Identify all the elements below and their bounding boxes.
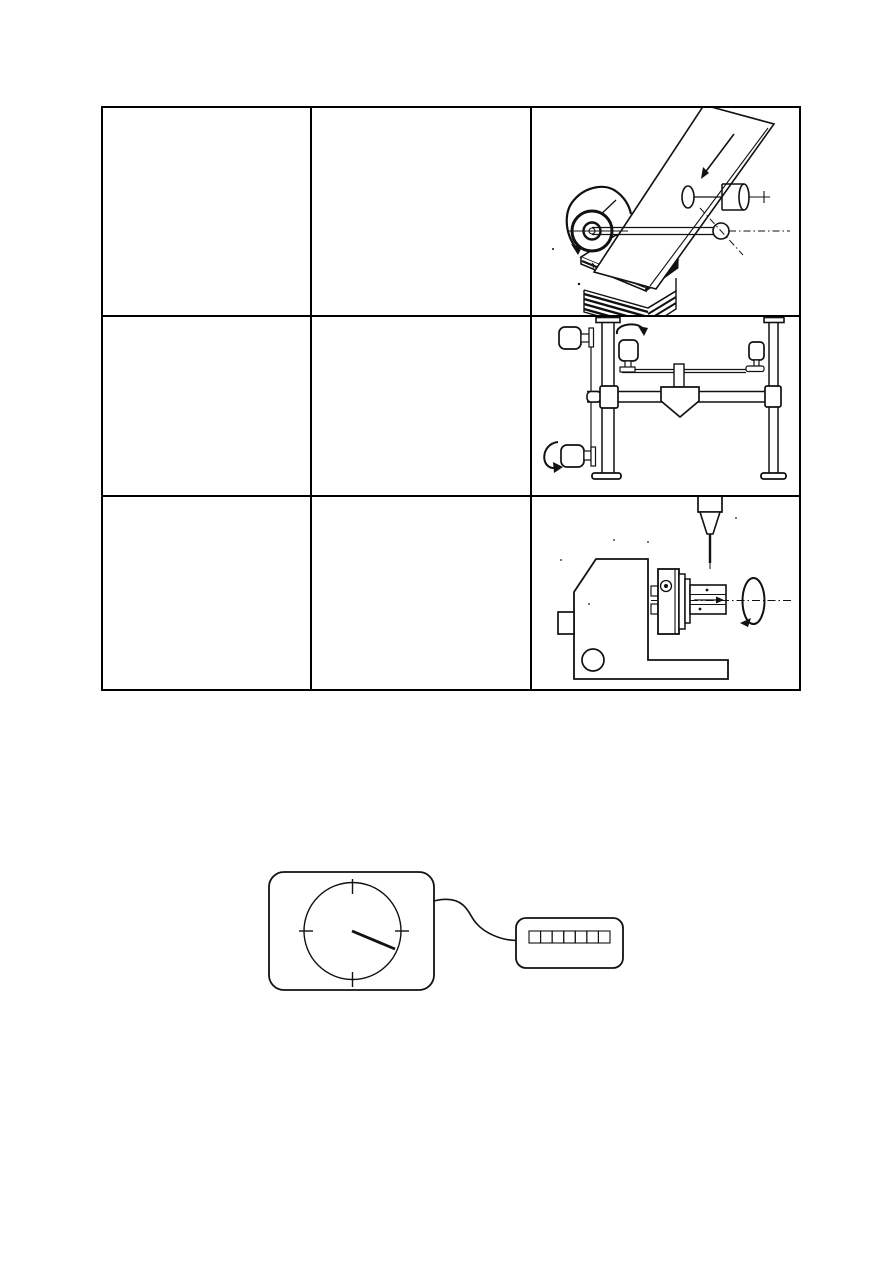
table-cell-r2c2 (311, 316, 531, 496)
connection-wire (434, 899, 516, 940)
figure-horizontal-boring (532, 497, 799, 689)
scanned-document-page: { "page": { "background_color": "#ffffff… (0, 0, 893, 1263)
figure-clamping-frame (532, 317, 799, 495)
table-cell-r2c3 (531, 316, 800, 496)
figure-circular-sawing (532, 108, 799, 315)
counter-cell (564, 931, 576, 943)
counter-cell (587, 931, 599, 943)
workpiece-bar (690, 585, 726, 614)
counter-cell (575, 931, 587, 943)
top-center-clamp-motor (617, 324, 648, 372)
table-cell-r3c1 (102, 496, 311, 690)
table-row-3 (102, 496, 800, 690)
tilted-board (594, 108, 774, 289)
clock-hand (352, 931, 395, 949)
counter-cell (529, 931, 541, 943)
table-cell-r3c2 (311, 496, 531, 690)
clock-counter-diagram (255, 855, 635, 1000)
right-beam-block (765, 386, 781, 407)
clock-panel (269, 872, 434, 990)
right-clamp-motor (746, 342, 764, 372)
table-cell-r2c1 (102, 316, 311, 496)
table-cell-r3c3 (531, 496, 800, 690)
machine-body (558, 559, 728, 679)
lower-left-clamp-motor (544, 442, 595, 473)
content-table (101, 106, 801, 691)
table-row-2 (102, 316, 800, 496)
spindle-discs (651, 569, 690, 634)
top-left-clamp-motor (559, 327, 594, 349)
counter-cell (541, 931, 553, 943)
vertical-drill (698, 497, 722, 569)
table-cell-r1c2 (311, 107, 531, 316)
rotation-arrow (740, 578, 765, 627)
counter-cell (598, 931, 610, 943)
table-cell-r1c1 (102, 107, 311, 316)
table-row-1 (102, 107, 800, 316)
counter-cells (529, 931, 610, 943)
counter-cell (552, 931, 564, 943)
table-cell-r1c3 (531, 107, 800, 316)
left-beam-block (600, 386, 618, 408)
